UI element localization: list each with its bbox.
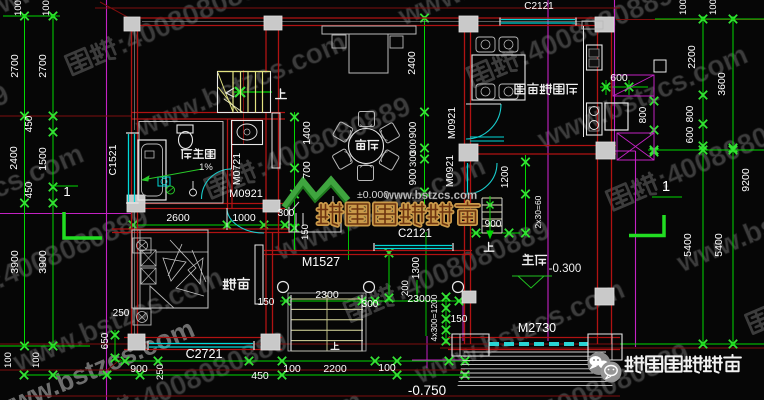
svg-text:100: 100 [708,0,719,15]
svg-text:www.bstzcs.com: www.bstzcs.com [384,190,477,202]
svg-text:100: 100 [3,352,14,368]
svg-text:1400: 1400 [301,121,313,145]
svg-text:1500: 1500 [37,147,49,171]
svg-text:100: 100 [31,352,42,368]
svg-text:900: 900 [408,121,419,138]
svg-text:1: 1 [63,184,70,199]
svg-text:250: 250 [155,364,166,380]
svg-text:600: 600 [685,126,696,143]
svg-text:3900: 3900 [37,250,49,274]
svg-text:C1521: C1521 [107,144,119,175]
svg-text:450: 450 [251,370,269,382]
svg-text:150: 150 [258,297,275,308]
svg-text:2400: 2400 [8,146,20,170]
svg-text:5400: 5400 [713,233,725,257]
svg-text:100: 100 [41,0,52,16]
svg-text:2200: 2200 [323,363,347,375]
svg-text:300: 300 [278,208,295,219]
svg-text:800: 800 [685,105,696,122]
svg-text:200: 200 [400,280,411,296]
svg-text:1000: 1000 [232,212,256,224]
svg-text:2300: 2300 [315,289,339,301]
svg-text:2x30=60: 2x30=60 [533,195,543,228]
svg-text:2600: 2600 [166,212,190,224]
svg-text:5400: 5400 [682,233,694,257]
svg-text:1%: 1% [199,162,213,173]
svg-text:1: 1 [662,178,670,195]
svg-text:M1527: M1527 [302,255,340,269]
svg-text:450: 450 [24,115,35,132]
svg-text:150: 150 [451,314,468,325]
svg-text:C2721: C2721 [186,347,223,361]
svg-text:1200: 1200 [500,165,511,188]
svg-text:C2121: C2121 [398,228,432,240]
svg-text:600: 600 [610,72,628,84]
svg-text:900: 900 [408,168,419,185]
svg-text:100: 100 [283,363,301,375]
svg-text:100: 100 [13,0,24,16]
svg-text:2700: 2700 [37,54,49,78]
svg-text:300: 300 [362,299,379,310]
svg-text:M2730: M2730 [518,321,556,335]
svg-text:800: 800 [638,106,649,123]
svg-text:2400: 2400 [406,51,418,75]
svg-text:250: 250 [113,308,130,319]
svg-text:100: 100 [378,362,396,374]
svg-text:900: 900 [130,363,148,375]
svg-text:M0721: M0721 [231,153,243,185]
svg-text:M0921: M0921 [229,188,263,200]
svg-text:M0921: M0921 [446,107,458,139]
svg-text:300: 300 [408,151,419,167]
svg-text:100: 100 [678,0,689,15]
svg-text:450: 450 [24,181,35,198]
svg-text:M0921: M0921 [444,155,456,187]
svg-text:900: 900 [485,219,502,230]
svg-text:-0.750: -0.750 [408,383,446,398]
svg-text:C2121: C2121 [524,1,554,12]
svg-text:2200: 2200 [686,45,698,69]
svg-text:3900: 3900 [9,250,21,274]
svg-text:650: 650 [100,332,111,349]
svg-text:4x300=1200: 4x300=1200 [429,294,439,341]
svg-text:150: 150 [300,224,311,240]
svg-text:700: 700 [301,161,313,179]
svg-text:2700: 2700 [9,54,21,78]
svg-text:1300: 1300 [411,256,422,279]
svg-text:3600: 3600 [716,72,728,96]
svg-text:9200: 9200 [740,168,752,192]
svg-text:-0.300: -0.300 [549,263,582,275]
